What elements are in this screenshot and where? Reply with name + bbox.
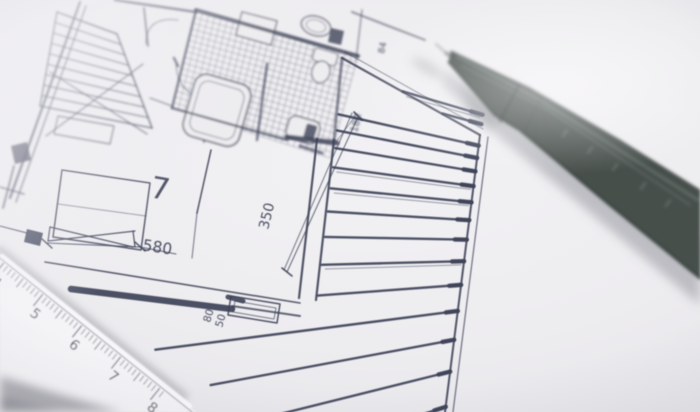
blueprint-photo: 841805803508050745678 — [0, 0, 700, 412]
room-number-label: 7 — [148, 170, 173, 208]
dimension-label-350: 350 — [256, 201, 278, 231]
dimension-label-84: 84 — [377, 41, 389, 55]
wash-basin — [299, 13, 333, 40]
dimension-label-50: 50 — [213, 313, 228, 329]
floor-plan-drawing: 841805803508050745678 — [0, 0, 700, 412]
dimension-label-580: 580 — [141, 236, 173, 258]
technical-pen — [436, 44, 700, 278]
staircase — [40, 12, 152, 144]
bathroom — [172, 10, 358, 158]
